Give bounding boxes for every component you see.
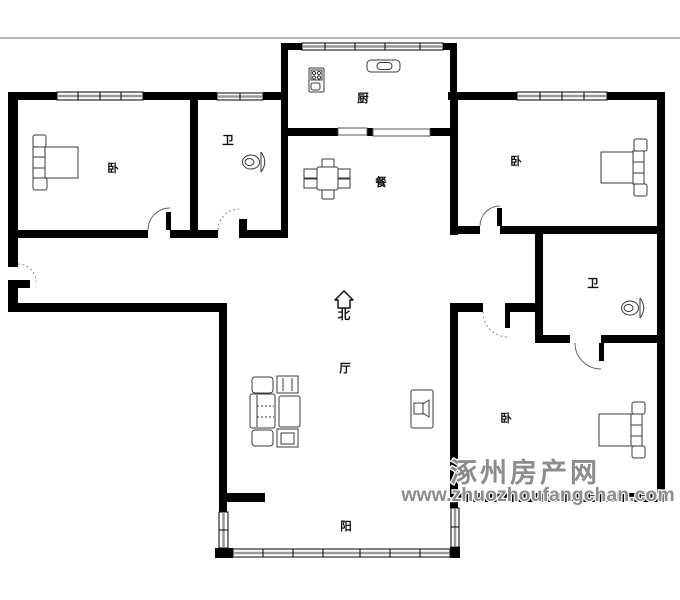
wall-segment <box>190 99 198 238</box>
room-label-balcony: 阳 <box>340 519 352 533</box>
window <box>233 549 450 557</box>
room-label-bedroom-top-left: 卧 <box>107 162 119 175</box>
toilet-icon <box>622 298 644 318</box>
wall-segment <box>535 226 543 343</box>
wall-segment <box>281 43 288 103</box>
door-arc <box>218 209 239 230</box>
sink-icon <box>367 60 400 72</box>
wall-segment <box>8 92 18 267</box>
wall-segment <box>601 335 657 343</box>
wall-segment <box>450 43 457 103</box>
wall-segment <box>281 99 288 238</box>
wall-segment <box>607 92 665 100</box>
door-arc <box>483 312 508 337</box>
wall-segment <box>170 230 190 238</box>
room-label-bedroom-top-right: 卧 <box>510 155 522 168</box>
wall-segment <box>8 230 148 238</box>
wall-segment <box>458 226 480 234</box>
room-label-bathroom-right: 卫 <box>587 277 599 290</box>
wall-segment <box>288 128 338 136</box>
door-leaf <box>505 312 510 328</box>
wall-segment <box>450 99 458 235</box>
wall-segment <box>8 280 30 288</box>
bed-icon <box>33 135 78 190</box>
door-leaf <box>599 343 604 361</box>
wall-segment <box>505 303 543 312</box>
window <box>451 508 459 547</box>
wall-segment <box>143 92 217 100</box>
wall-segment <box>198 230 218 238</box>
wall-segment <box>450 547 460 558</box>
wall-segment <box>500 226 657 234</box>
dining-table-icon <box>304 159 350 199</box>
room-label-dining: 餐 <box>374 175 387 189</box>
door-arc <box>575 343 601 369</box>
wall-segment <box>8 303 227 312</box>
tv-icon <box>411 390 433 428</box>
wall-segment <box>239 219 247 238</box>
window <box>517 92 607 100</box>
north-arrow-icon <box>335 291 353 308</box>
watermark-site-url: www.zhuozhoufangchan.com <box>400 484 674 506</box>
wall-segment <box>227 493 265 502</box>
room-label-living: 厅 <box>339 362 351 375</box>
room-label-bedroom-bottom-right: 卧 <box>500 412 512 425</box>
room-label-bathroom-top: 卫 <box>222 134 234 147</box>
wall-segment <box>543 335 570 343</box>
wall-segment <box>367 128 373 136</box>
kitchen-opening <box>373 129 430 136</box>
room-label-kitchen: 厨 <box>357 92 369 105</box>
wall-segment <box>657 92 665 502</box>
wall-segment <box>219 303 227 512</box>
wall-segment <box>215 548 233 558</box>
north-label: 北 <box>338 307 351 322</box>
window <box>217 93 263 100</box>
wall-segment <box>430 128 450 136</box>
north-indicator: 北 <box>335 291 353 322</box>
bed-icon <box>599 402 645 458</box>
sofa-set-icon <box>250 376 300 447</box>
window <box>219 512 228 548</box>
floor-plan: 北 卧 卫 厨 餐 卧 卫 厅 卧 阳 涿州房产网 www.zhuozhoufa… <box>0 0 680 600</box>
top-border-line <box>0 37 680 39</box>
entry-door-arc <box>18 264 36 282</box>
door-leaf <box>166 212 171 230</box>
door-leaf <box>497 208 502 226</box>
window <box>57 92 143 100</box>
kitchen-opening <box>338 128 367 135</box>
bed-icon <box>601 139 647 196</box>
window <box>302 43 443 50</box>
wall-segment <box>247 230 281 238</box>
wall-segment <box>448 92 517 100</box>
toilet-icon <box>243 152 265 172</box>
stove-icon <box>309 68 324 92</box>
